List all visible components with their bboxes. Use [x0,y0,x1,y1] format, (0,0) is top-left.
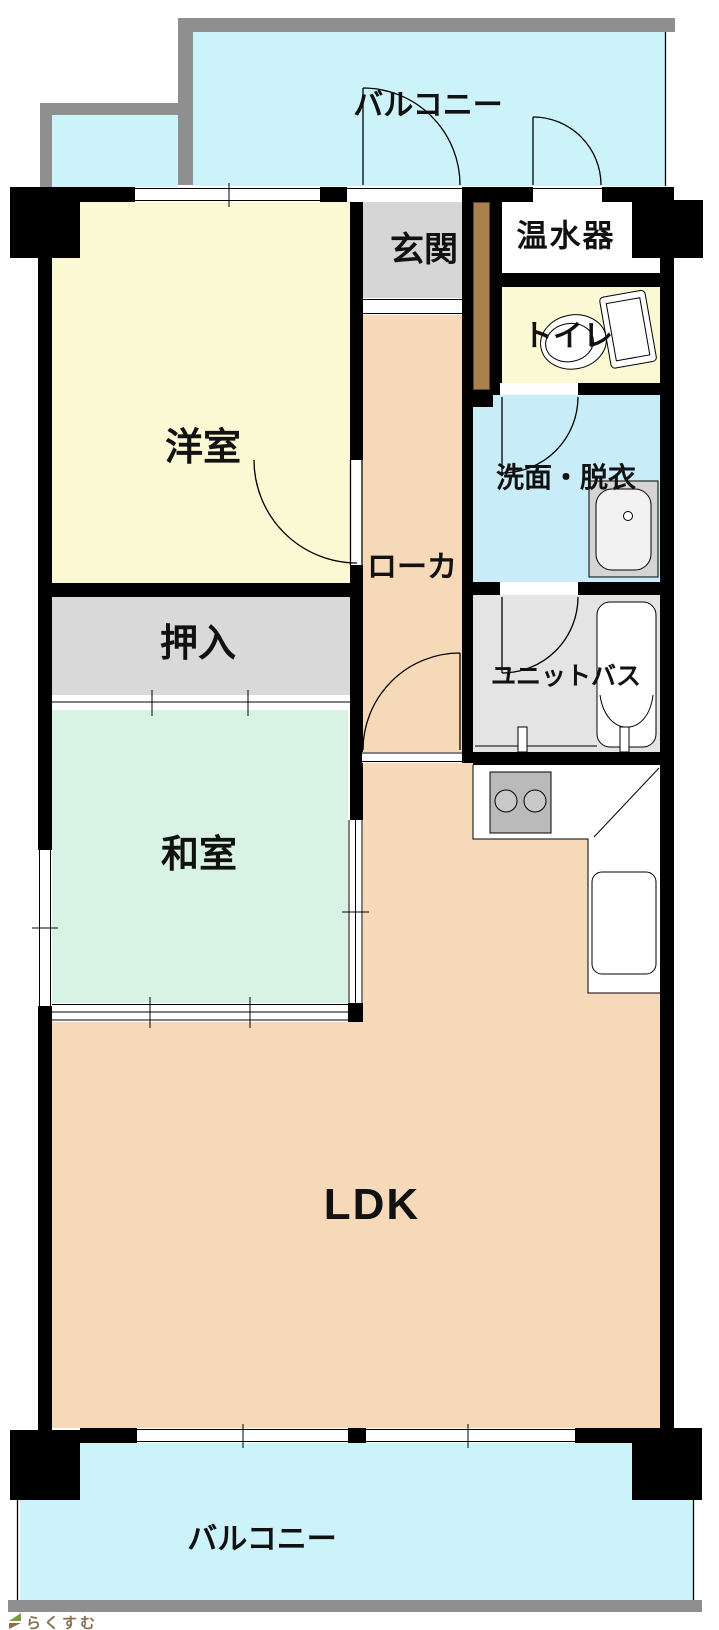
wall-washitsu-post [348,1003,363,1022]
sliding-washitsu-right [348,820,363,1003]
window-washitsu-left [38,850,52,1006]
opening-onsuiki-door [533,187,602,202]
window-ldk-bottom-1 [137,1428,348,1443]
label-youshitsu: 洋室 [165,429,241,467]
label-unit-bath: ユニットバス [491,665,641,690]
wall-right [660,258,674,1428]
balcony-top-small [52,115,178,188]
wall-bath-top-l [473,582,500,595]
label-oshiire: 押入 [160,625,236,663]
wall-bath-bottom [473,752,660,765]
threshold-hallway [362,752,462,763]
railing-small-top [40,103,193,115]
label-ldk: LDK [324,1183,420,1227]
wall-corner-bl [10,1430,80,1500]
kitchen-counter-side [588,839,660,993]
label-genkan: 玄関 [390,233,458,267]
wall-bottom-pier [348,1428,366,1443]
sliding-washitsu-bottom [52,1003,348,1022]
room-hallway [362,315,462,752]
label-toilet: トイレ [523,322,613,352]
railing-top-main [178,18,675,32]
sliding-oshiire [52,695,350,710]
label-washitsu: 和室 [161,836,237,874]
window-youshitsu-top [135,187,320,202]
floorplan: バルコニー 洋室 玄関 温水器 トイレ 洗面・脱衣 ローカ 押入 ユニットバス … [0,0,719,1630]
railing-small-left [40,103,52,188]
balcony-bottom [20,1443,694,1600]
wall-bottom-2 [575,1428,633,1443]
opening-genkan-door [347,187,462,202]
wall-bath-top-r [578,582,660,595]
rakusumu-logo-icon [9,1613,21,1629]
railing-left-main [178,18,193,185]
label-balcony-top: バルコニー [353,91,502,121]
wall-left-upper [38,202,52,850]
wall-corner-tr [632,200,703,258]
wall-corner-br [632,1428,702,1500]
opening-youshitsu-door [350,460,363,565]
wall-bottom-1 [80,1428,137,1443]
wall-left-lower [38,1006,52,1430]
wall-toilet-left [490,287,502,383]
wall-top-pier [320,187,347,202]
kitchen-counter-top [473,765,660,839]
label-balcony-bottom: バルコニー [187,1525,336,1555]
wall-onsuiki-bottom [490,273,660,287]
label-roka: ローカ [367,553,457,583]
wall-senmen-top-r [578,383,660,395]
rakusumu-logo-text: らくすむ [26,1612,98,1630]
shoe-cabinet [473,202,490,390]
wall-hall-left-lower [350,565,363,820]
label-senmen: 洗面・脱衣 [496,464,636,492]
wall-top-2 [462,187,533,202]
window-ldk-bottom-2 [366,1428,575,1443]
wall-top-1 [42,187,135,202]
wall-youshitsu-oshiire [42,583,350,597]
wall-hall-right [462,202,473,763]
room-youshitsu [52,202,350,583]
wall-hall-left-upper [350,202,363,460]
threshold-genkan [363,298,462,315]
label-onsuiki: 温水器 [517,221,616,252]
footer-bar [8,1600,702,1612]
